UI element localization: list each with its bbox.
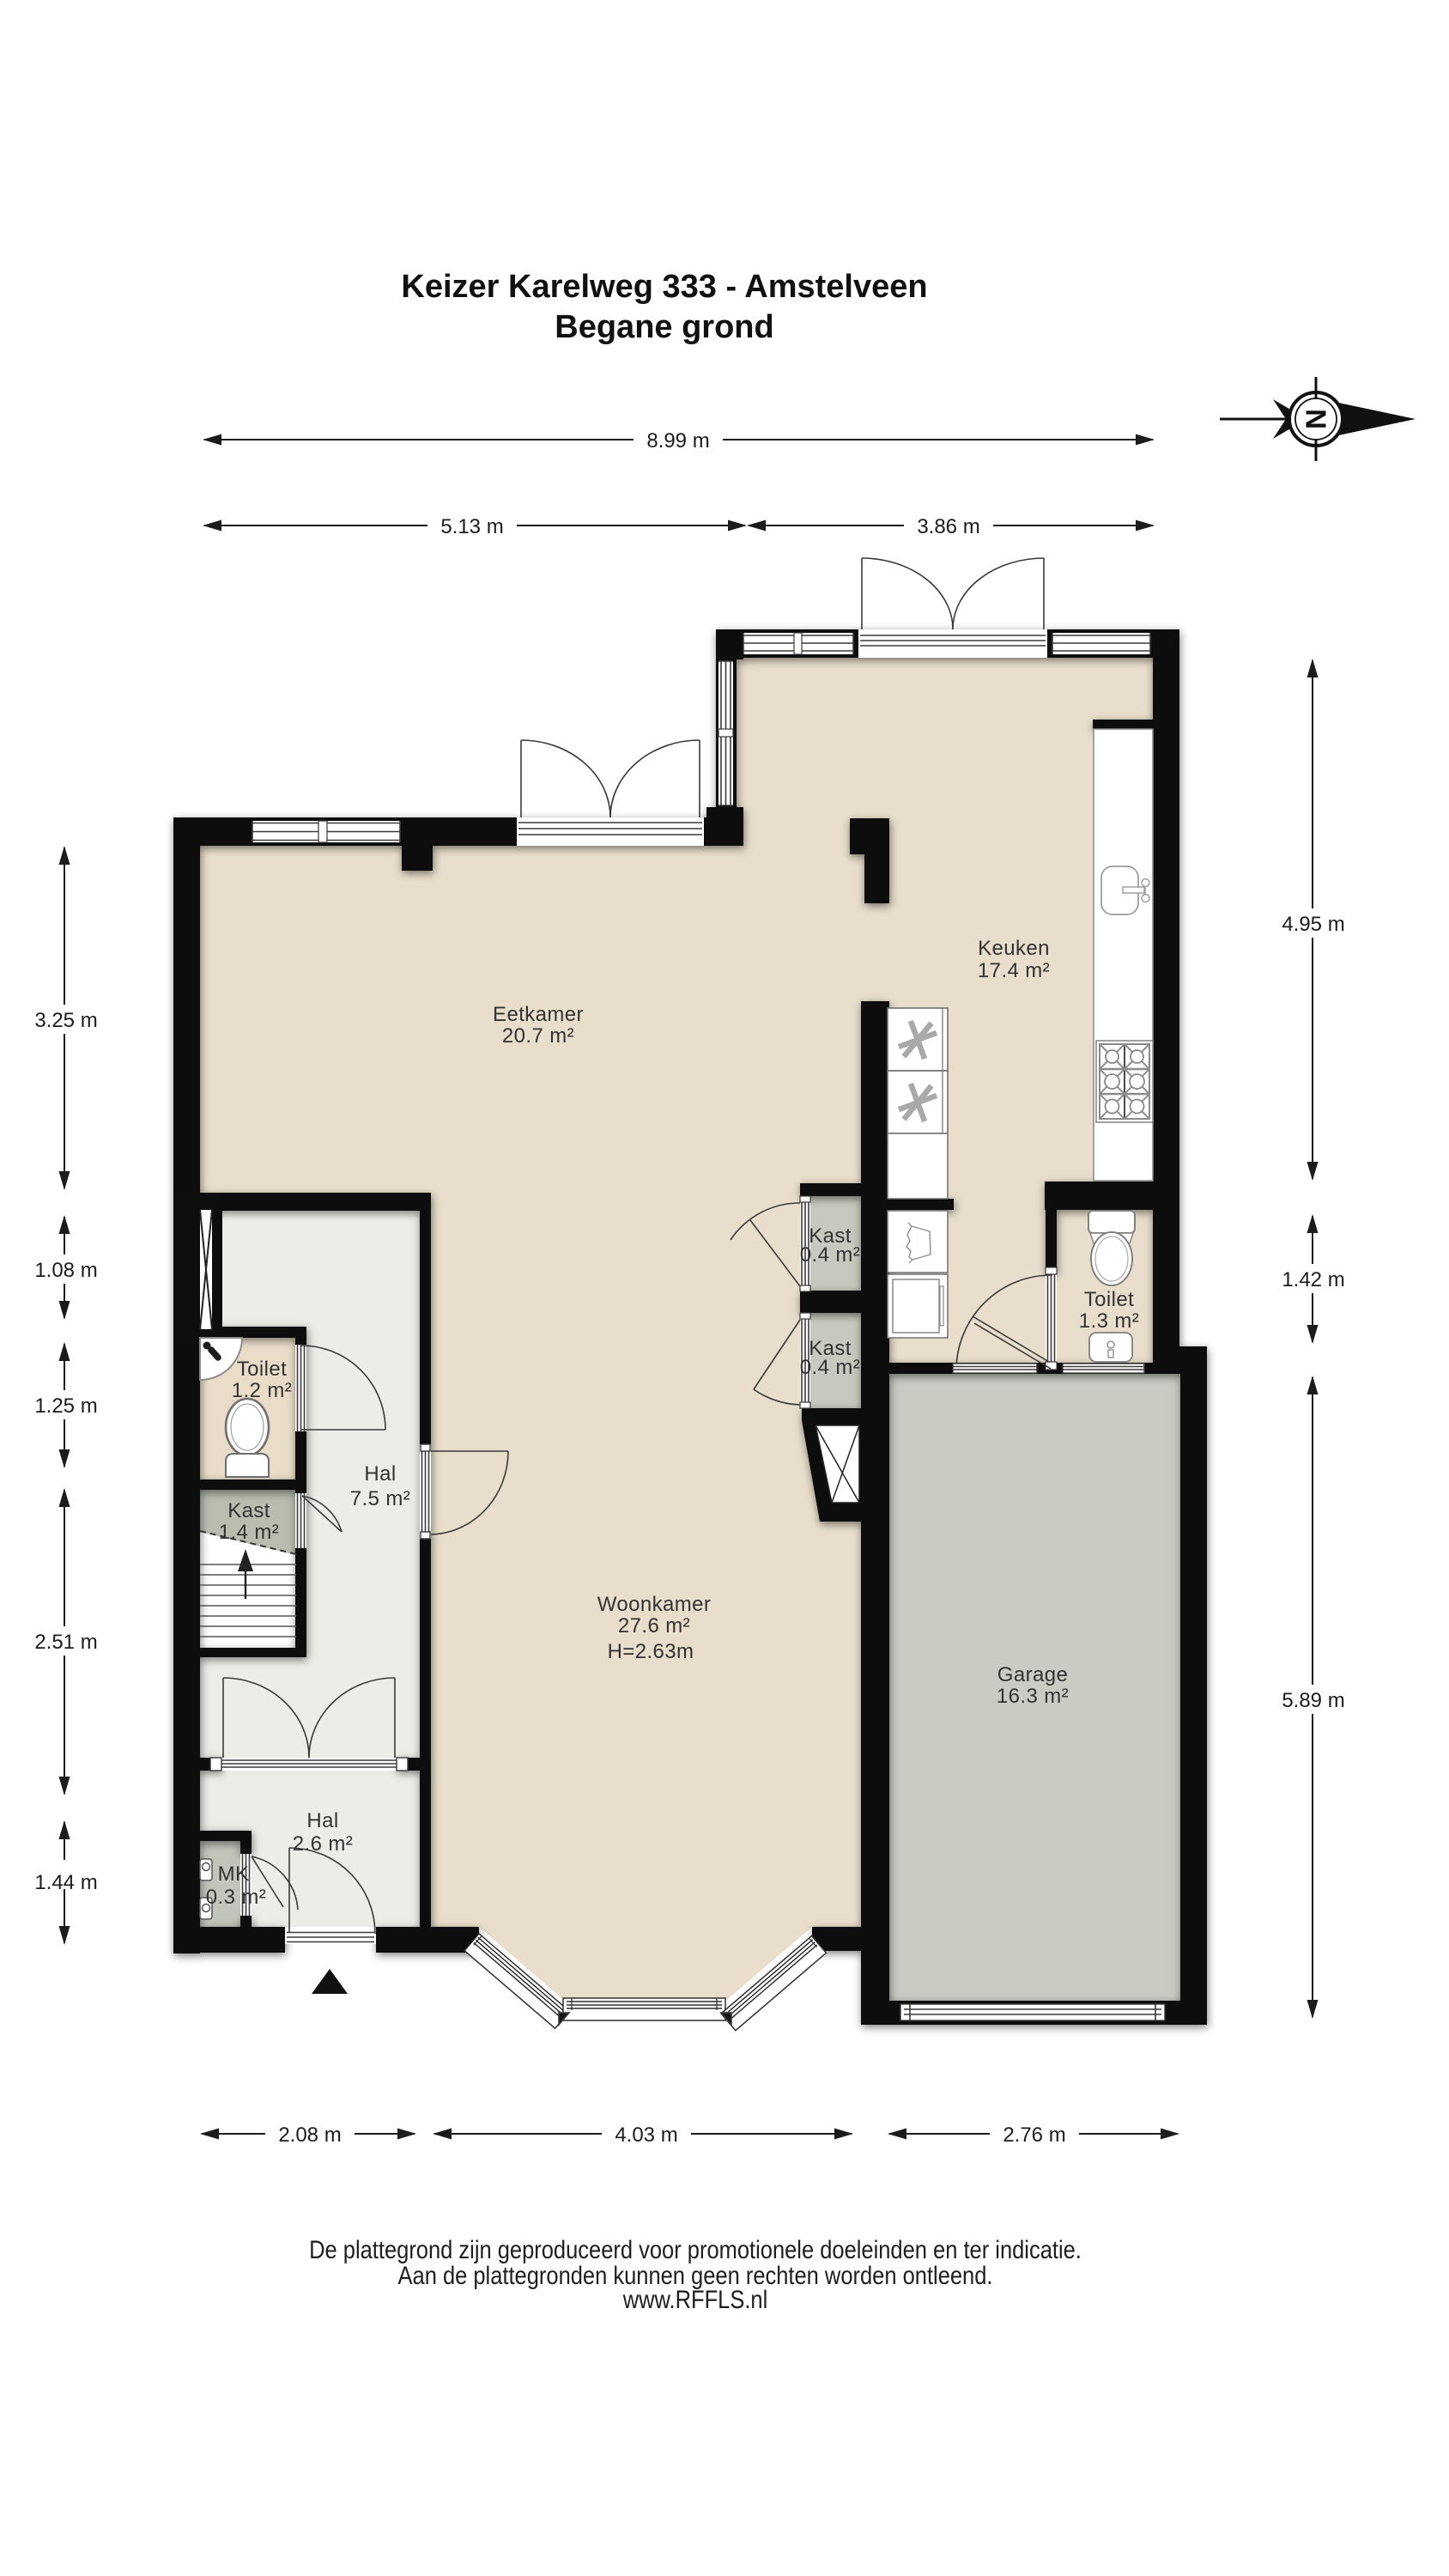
svg-text:16.3 m²: 16.3 m² [997,1685,1069,1708]
svg-text:Toilet: Toilet [1084,1288,1134,1311]
svg-text:27.6 m²: 27.6 m² [618,1614,690,1637]
svg-text:1.3 m²: 1.3 m² [1079,1309,1139,1333]
svg-text:Keizer Karelweg 333 - Amstelve: Keizer Karelweg 333 - Amstelveen [401,269,927,305]
svg-text:2.51 m: 2.51 m [34,1631,97,1654]
svg-text:8.99 m: 8.99 m [646,429,709,453]
svg-text:0.3 m²: 0.3 m² [206,1886,266,1909]
svg-text:1.4 m²: 1.4 m² [219,1521,279,1544]
svg-text:Woonkamer: Woonkamer [597,1593,712,1616]
svg-text:3.86 m: 3.86 m [917,515,979,538]
svg-text:N: N [1300,409,1332,429]
svg-text:7.5 m²: 7.5 m² [350,1487,410,1510]
svg-text:1.2 m²: 1.2 m² [232,1379,292,1402]
svg-text:4.03 m: 4.03 m [615,2123,677,2147]
svg-text:1.42 m: 1.42 m [1282,1268,1344,1291]
svg-text:De plattegrond zijn geproducee: De plattegrond zijn geproduceerd voor pr… [309,2235,1082,2263]
svg-text:1.08 m: 1.08 m [34,1259,97,1282]
svg-text:H=2.63m: H=2.63m [608,1640,694,1663]
svg-text:Kast: Kast [227,1499,270,1522]
svg-text:0.4 m²: 0.4 m² [800,1356,860,1379]
svg-text:Begane grond: Begane grond [555,309,773,345]
svg-text:Hal: Hal [364,1462,396,1485]
svg-text:Garage: Garage [997,1663,1068,1686]
svg-text:2.76 m: 2.76 m [1003,2123,1065,2147]
svg-text:1.44 m: 1.44 m [34,1871,97,1894]
svg-text:Keuken: Keuken [978,937,1050,960]
svg-text:17.4 m²: 17.4 m² [978,959,1050,982]
svg-text:Toilet: Toilet [237,1358,287,1381]
svg-text:20.7 m²: 20.7 m² [502,1024,574,1048]
svg-text:5.89 m: 5.89 m [1282,1689,1344,1712]
svg-text:2.08 m: 2.08 m [278,2123,341,2147]
svg-text:5.13 m: 5.13 m [440,515,503,538]
svg-text:www.RFFLS.nl: www.RFFLS.nl [622,2285,767,2313]
svg-text:MK: MK [218,1862,250,1886]
svg-text:4.95 m: 4.95 m [1282,913,1344,936]
svg-text:Eetkamer: Eetkamer [493,1003,584,1026]
svg-text:Hal: Hal [306,1809,338,1832]
svg-text:2.6 m²: 2.6 m² [293,1832,353,1856]
svg-text:0.4 m²: 0.4 m² [800,1243,860,1267]
svg-text:1.25 m: 1.25 m [34,1394,97,1418]
svg-text:3.25 m: 3.25 m [34,1009,97,1032]
